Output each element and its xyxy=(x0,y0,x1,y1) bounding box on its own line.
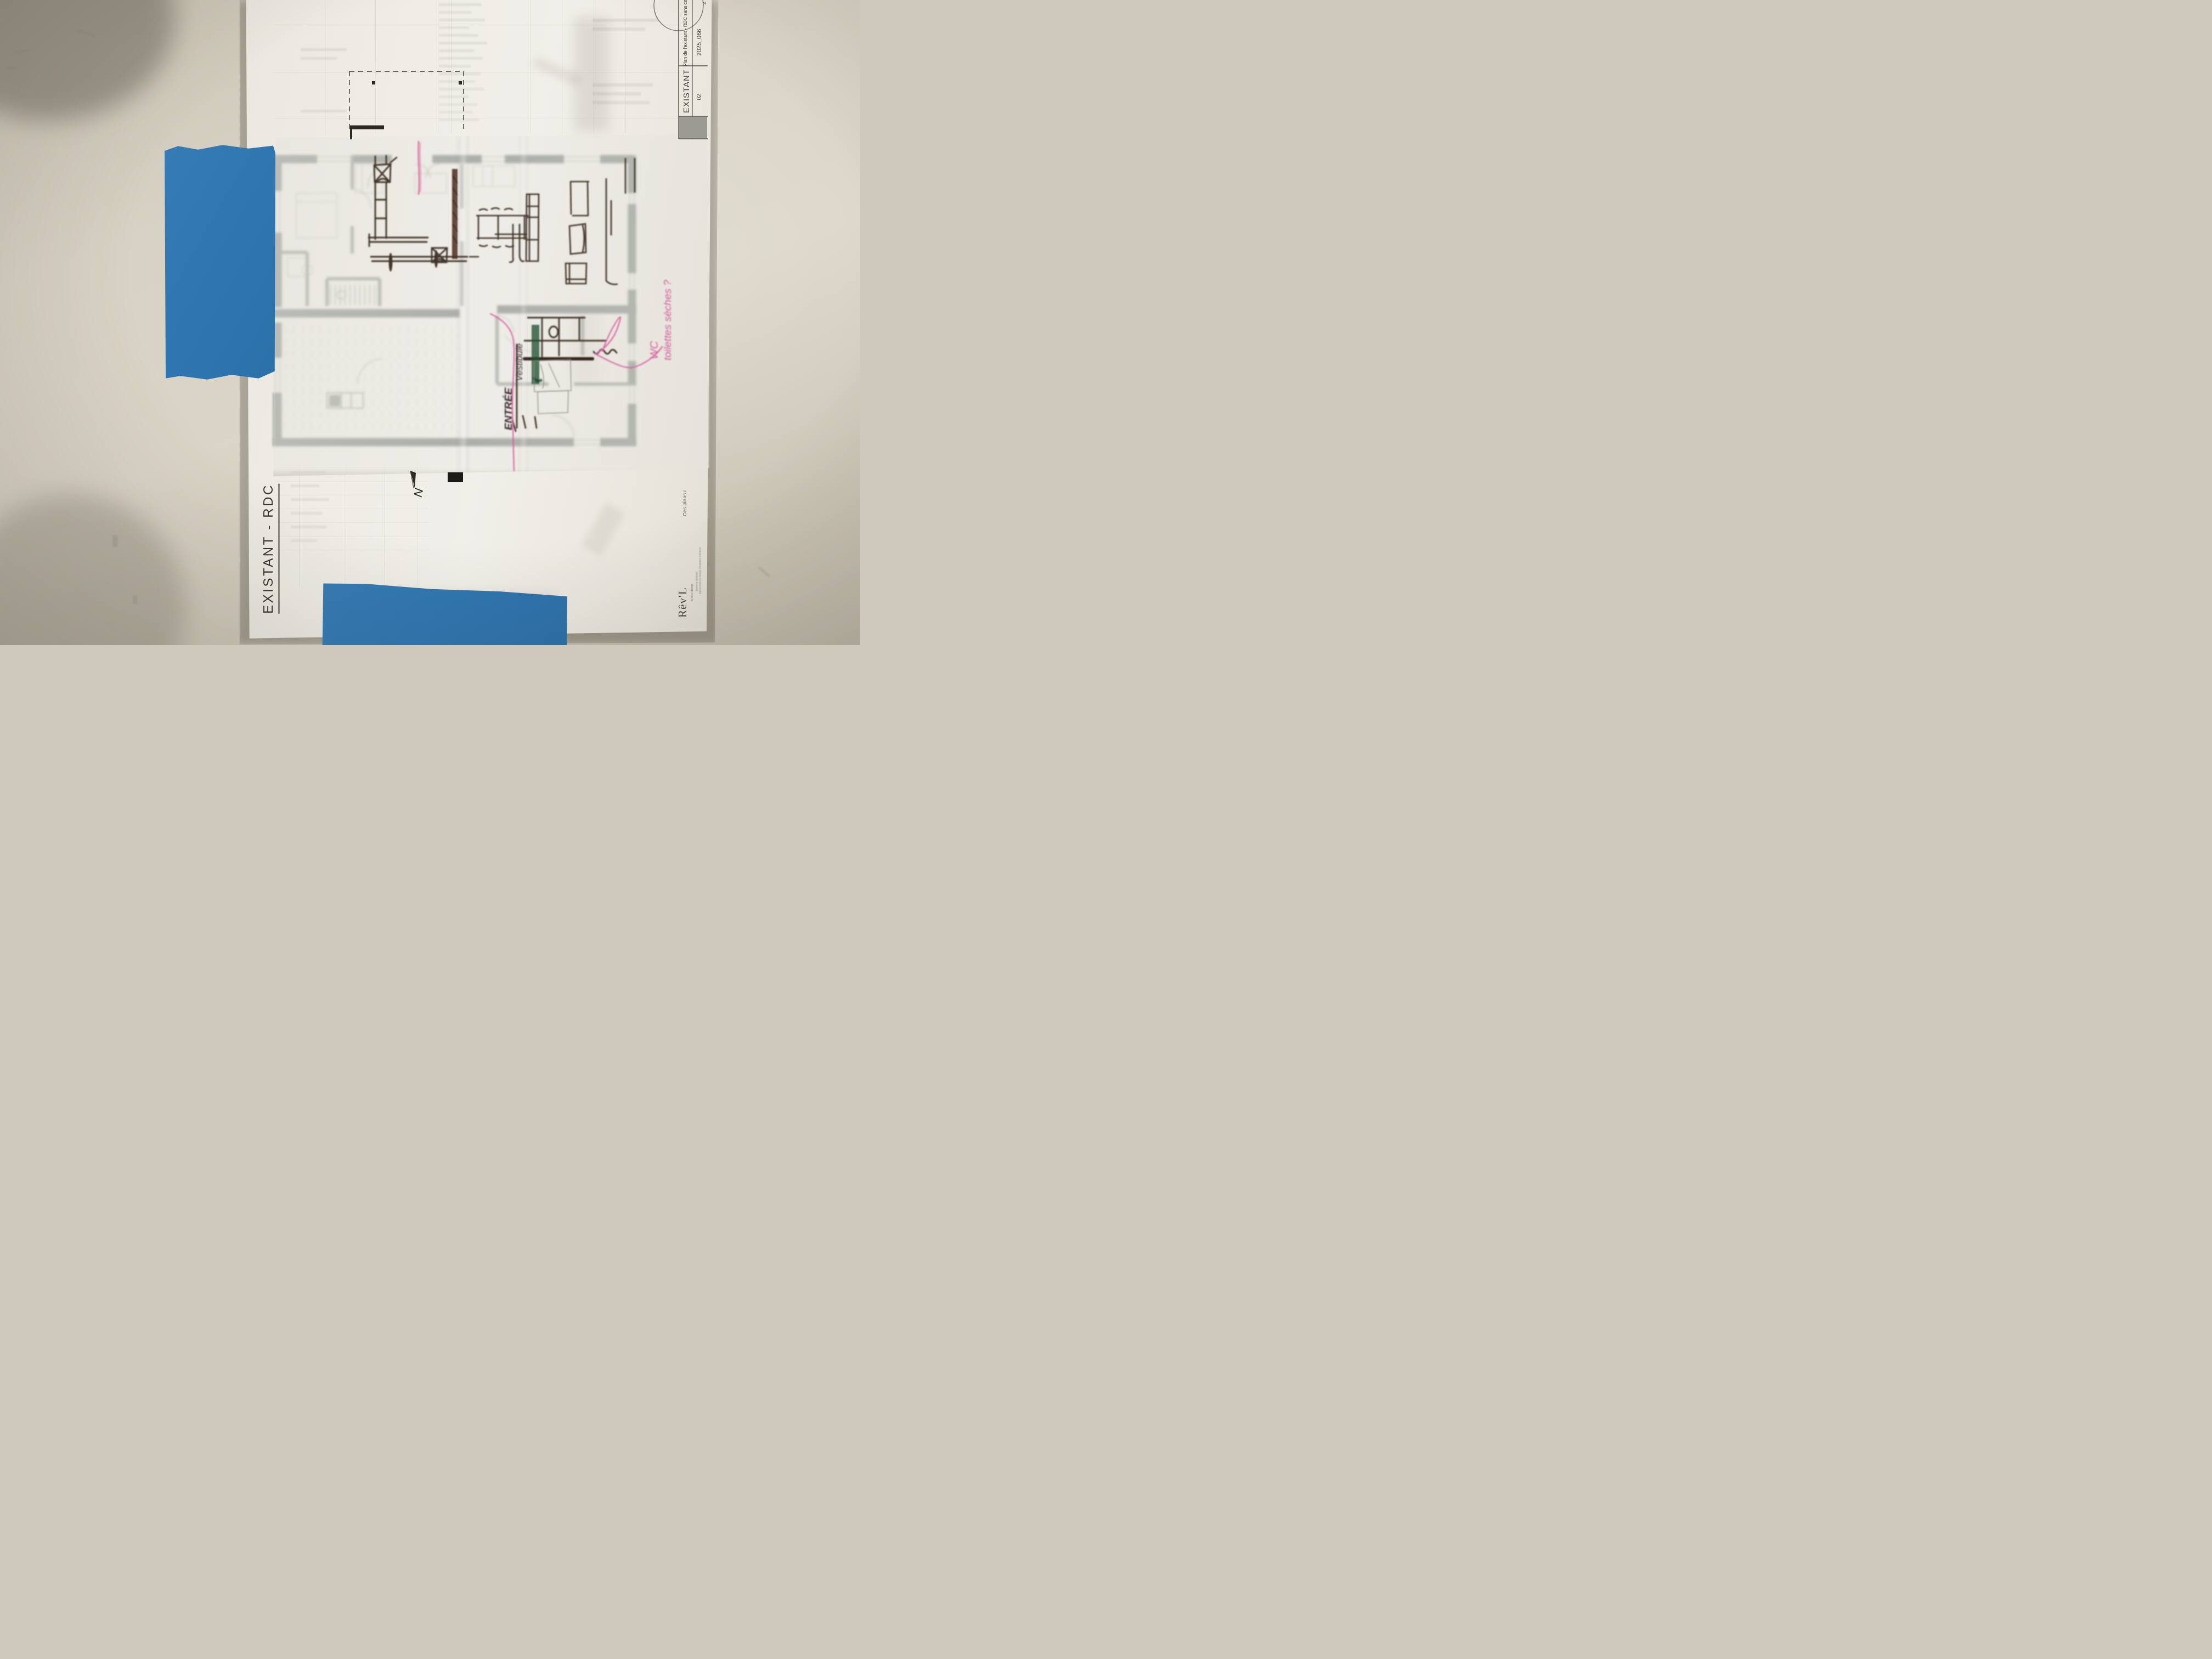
titleblock-corner-digit: 2 xyxy=(702,2,707,4)
footer-note: Ces plans r xyxy=(681,490,687,516)
crisp-print-layer: N xyxy=(0,0,860,645)
logo-tagline: by rêve design xyxy=(690,584,693,602)
logo-smallprint-2: agencement et design d'espaces intérieur… xyxy=(699,547,702,594)
north-arrow-icon: N xyxy=(410,471,426,498)
titleblock-sheet-name: EXISTANT xyxy=(681,69,691,113)
logo-smallprint-1: laurence dumond xyxy=(696,572,698,591)
dashed-outline-rect xyxy=(349,71,464,139)
svg-text:N: N xyxy=(411,487,426,498)
titleblock-project-code: 2025_066 xyxy=(696,29,702,56)
logo-revl: Rêv'L xyxy=(676,587,690,617)
titleblock-plan-label: Plan de l'existant - RDC sans co xyxy=(682,0,688,66)
title-block-grey-cell xyxy=(679,117,707,138)
plan-side-title: EXISTANT - RDC xyxy=(261,483,280,613)
plan-key-mark xyxy=(448,472,463,482)
titleblock-sheet-number: 02 xyxy=(696,94,702,100)
photo-of-floorplan-on-wall: WC toilettes sèches ? ENTRÉE Vestibule xyxy=(0,0,860,645)
blue-tape-left xyxy=(165,144,276,381)
